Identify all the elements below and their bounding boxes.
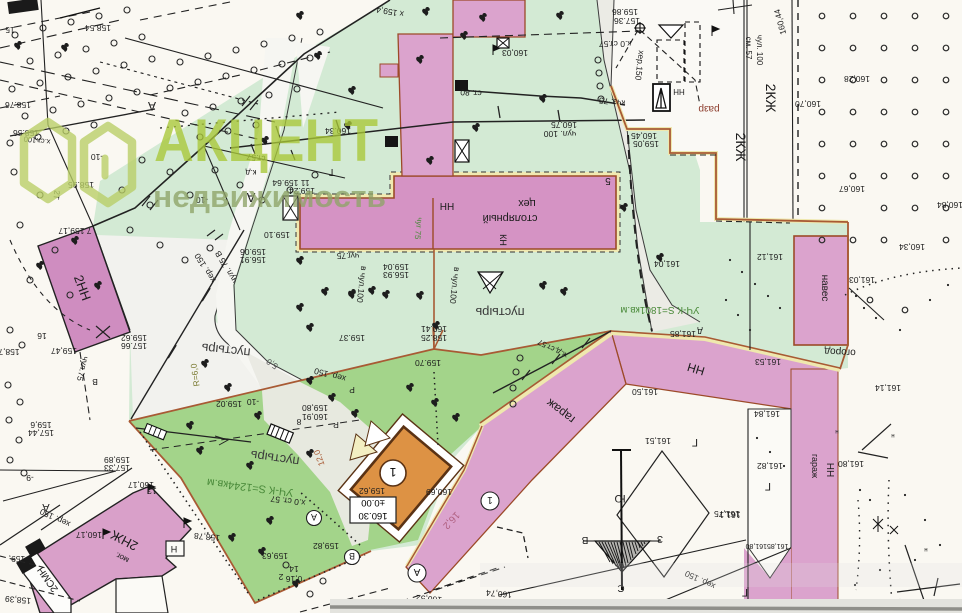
svg-text:-10: -10 (247, 397, 260, 407)
svg-text:см. 57: см. 57 (744, 37, 753, 60)
svg-text:159,: 159, (9, 554, 26, 564)
svg-text:158.25: 158.25 (421, 333, 447, 343)
svg-text:Г: Г (742, 586, 748, 598)
svg-text:1: 1 (389, 465, 396, 479)
svg-text:Р: Р (333, 420, 339, 430)
svg-text:З: З (657, 533, 663, 544)
svg-text:1: 1 (487, 494, 493, 505)
svg-text:160,70: 160,70 (795, 99, 821, 109)
svg-text:НН: НН (824, 463, 835, 477)
svg-text:2: 2 (278, 572, 283, 582)
svg-text:5: 5 (605, 175, 611, 186)
svg-text:157,44: 157,44 (28, 428, 54, 438)
svg-text:гараж: гараж (810, 454, 820, 478)
svg-text:А: А (413, 566, 420, 577)
svg-text:2КЖ: 2КЖ (733, 133, 749, 162)
svg-text:НН: НН (673, 87, 685, 96)
svg-text:159,05: 159,05 (633, 139, 659, 149)
svg-text:разр: разр (698, 103, 720, 114)
svg-text:161,1: 161,1 (719, 510, 741, 520)
svg-text:-9: -9 (26, 473, 34, 483)
svg-text:161,51: 161,51 (645, 436, 671, 446)
svg-text:7 159,17: 7 159,17 (58, 226, 91, 236)
svg-text:159.37: 159.37 (339, 333, 365, 343)
svg-text:159,63: 159,63 (262, 551, 288, 561)
svg-text:чул. 100: чул. 100 (544, 129, 577, 139)
svg-text:УЧ-К S=1801кв.м: УЧ-К S=1801кв.м (620, 304, 699, 315)
svg-text:Н: Н (171, 544, 178, 554)
svg-text:Р: Р (349, 385, 355, 395)
svg-text:157.66: 157.66 (121, 341, 147, 351)
svg-text:16: 16 (37, 331, 47, 341)
svg-text:159.10: 159.10 (264, 230, 290, 240)
svg-text:160,28: 160,28 (844, 74, 870, 84)
svg-text:0,16: 0,16 (285, 574, 302, 584)
svg-text:156.91: 156.91 (240, 255, 266, 265)
svg-text:Г: Г (765, 480, 771, 492)
svg-text:13: 13 (147, 486, 157, 496)
svg-text:161,04: 161,04 (654, 259, 680, 269)
svg-text:158.76: 158.76 (5, 100, 31, 110)
svg-text:160.75: 160.75 (551, 120, 577, 130)
svg-text:161,85161,80: 161,85161,80 (745, 542, 788, 549)
svg-text:161,80: 161,80 (838, 459, 864, 469)
svg-text:160,84: 160,84 (937, 200, 962, 210)
svg-text:н: н (924, 546, 927, 552)
svg-text:н: н (891, 432, 894, 438)
svg-text:КН: КН (498, 234, 508, 246)
svg-text:161,50: 161,50 (632, 387, 658, 397)
svg-text:156.93: 156.93 (383, 270, 409, 280)
svg-text:столярный: столярный (483, 212, 538, 224)
svg-text:±0.00: ±0.00 (361, 497, 385, 508)
svg-text:недвижимость: недвижимость (153, 179, 386, 214)
svg-text:157,33: 157,33 (104, 463, 130, 473)
svg-text:чуг.75: чуг.75 (336, 251, 359, 261)
svg-text:159,47: 159,47 (51, 346, 77, 356)
svg-text:чул. 100: чул. 100 (755, 35, 764, 66)
svg-text:цех: цех (518, 197, 536, 209)
svg-text:160,69: 160,69 (426, 487, 452, 497)
svg-text:8: 8 (296, 417, 301, 427)
svg-text:160.41: 160.41 (421, 324, 447, 334)
svg-text:160,34: 160,34 (899, 242, 925, 252)
svg-text:-10: -10 (91, 152, 104, 162)
svg-text:15: 15 (5, 25, 15, 35)
svg-text:161,03: 161,03 (849, 275, 875, 285)
svg-text:160,67: 160,67 (839, 184, 865, 194)
svg-text:Ю: Ю (614, 492, 625, 504)
svg-text:158.54: 158.54 (85, 23, 111, 33)
svg-text:157.36: 157.36 (614, 16, 640, 26)
svg-text:159.02: 159.02 (216, 399, 242, 409)
svg-text:пустырь: пустырь (475, 305, 524, 320)
svg-text:Г: Г (692, 436, 698, 448)
svg-text:14: 14 (289, 564, 299, 574)
svg-text:ст. 80: ст. 80 (460, 87, 482, 98)
svg-text:В: В (92, 377, 98, 387)
svg-text:161,53: 161,53 (755, 357, 781, 367)
svg-text:161,82: 161,82 (757, 461, 783, 471)
svg-text:н: н (835, 428, 838, 434)
svg-text:огород: огород (824, 345, 856, 358)
svg-text:161,85: 161,85 (670, 329, 696, 339)
svg-text:159,82: 159,82 (313, 541, 339, 551)
svg-text:161,84: 161,84 (754, 409, 780, 419)
svg-text:к.0 ст.57: к.0 ст.57 (599, 39, 631, 49)
svg-text:159.86: 159.86 (612, 7, 638, 17)
svg-text:В: В (349, 551, 355, 561)
svg-text:161,12: 161,12 (757, 252, 783, 262)
svg-text:159,80: 159,80 (302, 403, 328, 413)
svg-text:160,03: 160,03 (502, 48, 528, 58)
svg-text:навес: навес (819, 275, 830, 302)
svg-text:2КЖ: 2КЖ (763, 84, 779, 113)
svg-text:В: В (581, 534, 588, 545)
svg-text:АКЦЕНТ: АКЦЕНТ (154, 107, 378, 174)
svg-text:161,14: 161,14 (875, 383, 901, 393)
svg-text:А: А (311, 512, 317, 522)
svg-text:д: д (697, 327, 703, 337)
svg-text:159,62: 159,62 (359, 486, 385, 496)
svg-text:159.70: 159.70 (415, 358, 441, 368)
svg-text:160,91: 160,91 (302, 412, 328, 422)
svg-text:160,17: 160,17 (76, 530, 102, 540)
svg-text:158,7: 158,7 (0, 347, 20, 357)
svg-text:НН: НН (440, 200, 454, 211)
svg-text:160.30: 160.30 (358, 510, 387, 521)
